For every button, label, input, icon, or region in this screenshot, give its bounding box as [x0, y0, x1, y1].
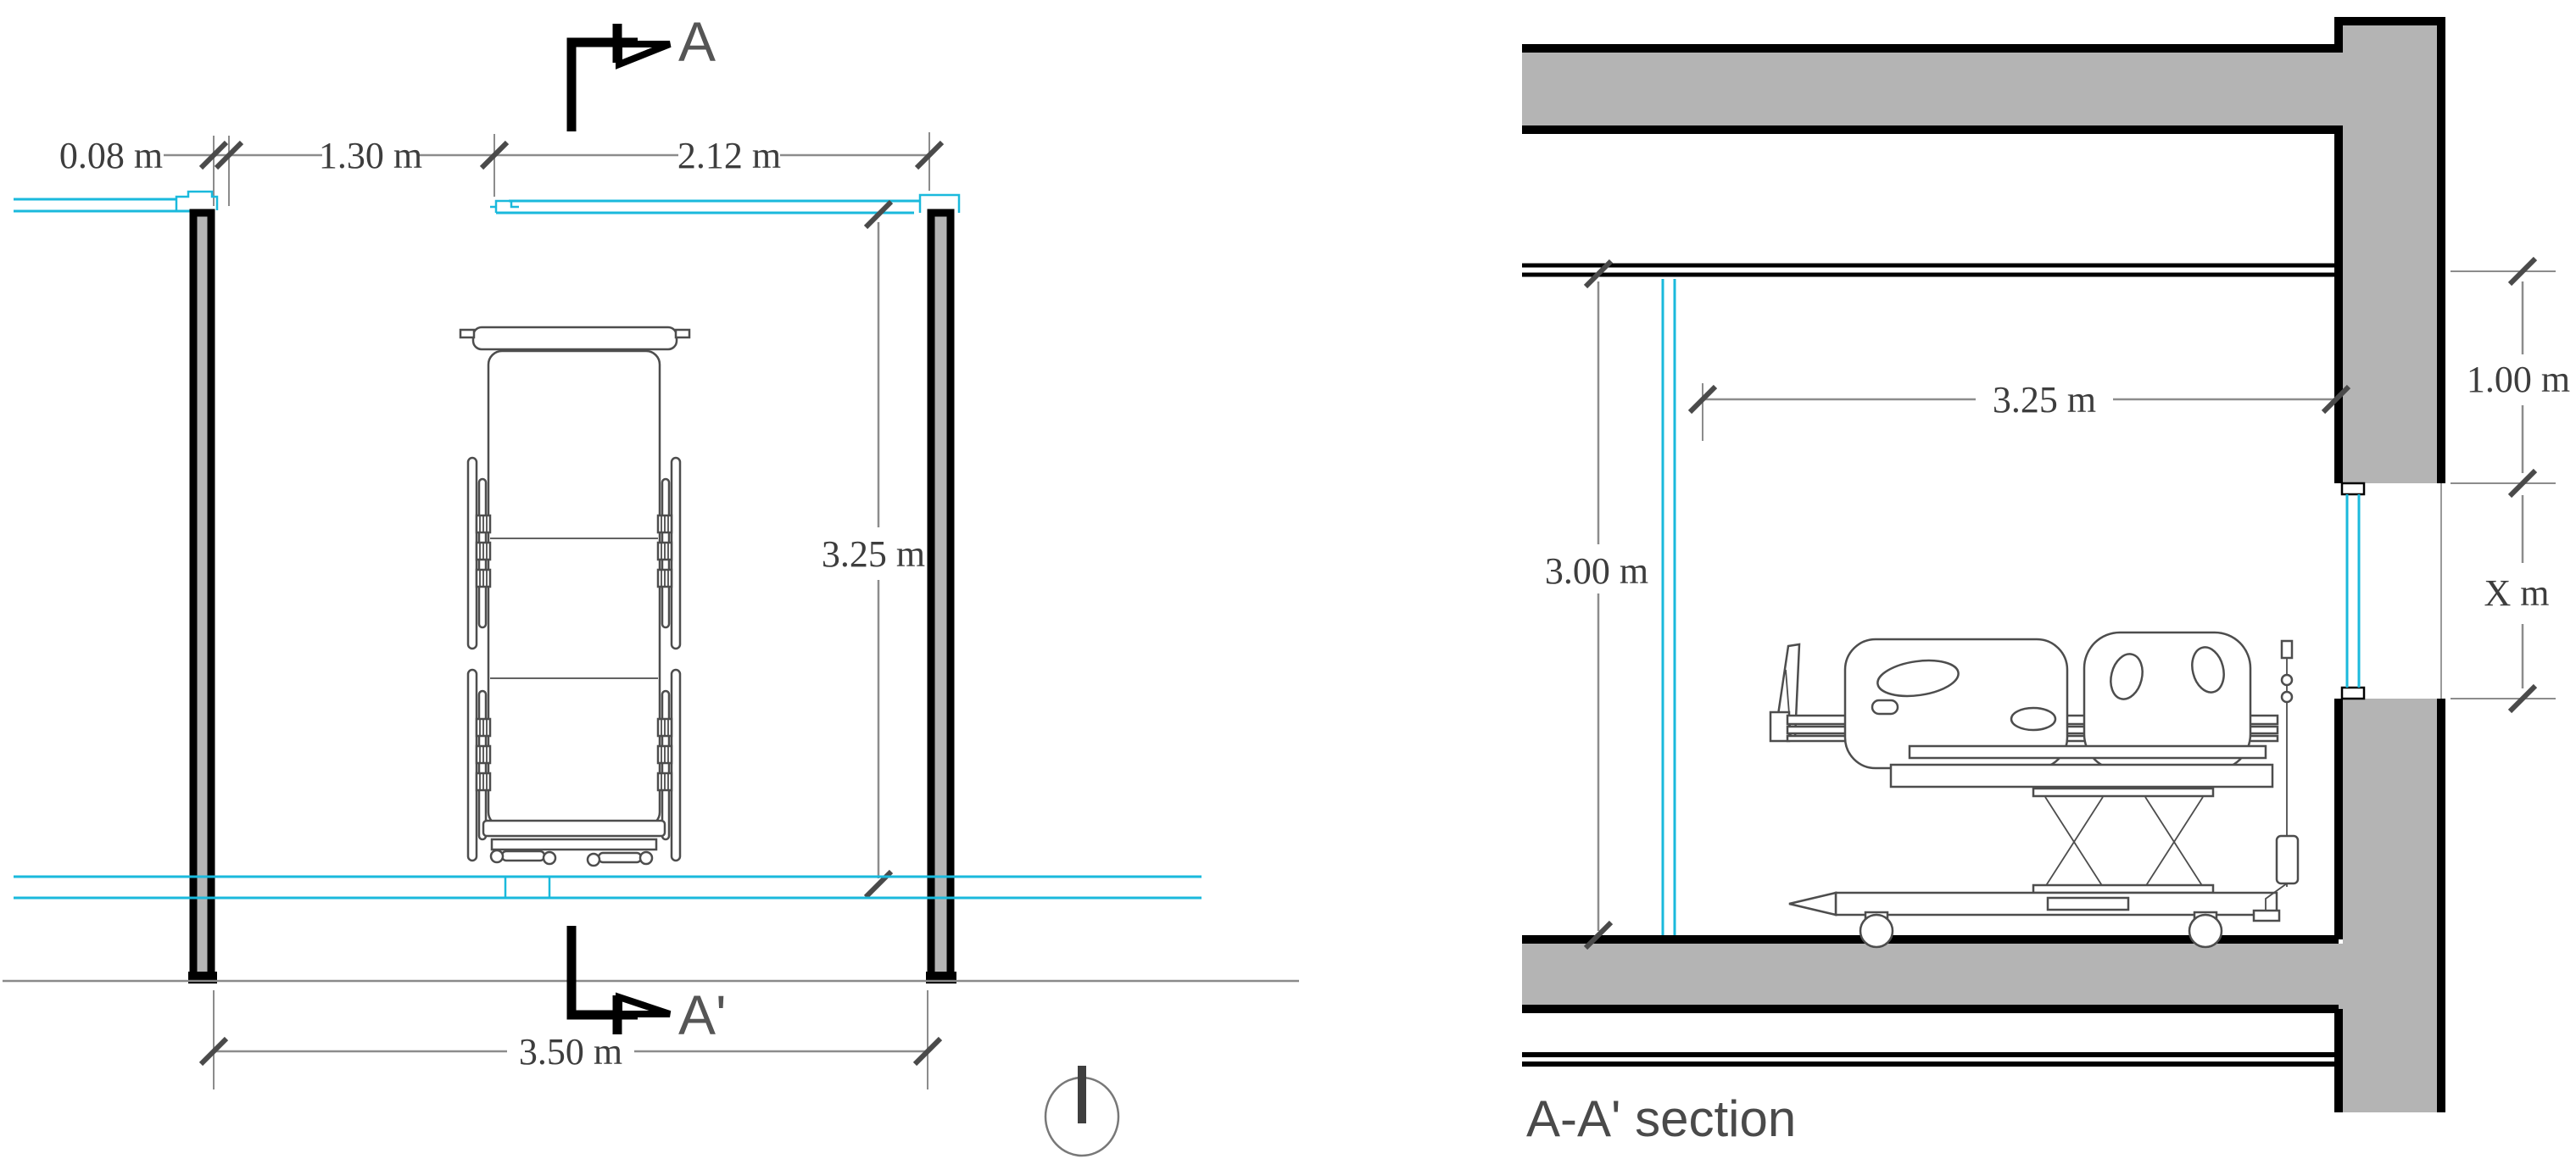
dim-label-room-depth: 3.25 m: [822, 533, 925, 575]
wall-right: [931, 213, 951, 979]
door-frame-cap: [2342, 483, 2364, 494]
window-jamb: [490, 201, 519, 213]
bed-side-rail: [479, 691, 486, 839]
bed-caster: [491, 850, 555, 864]
bed-foot-frame: [492, 839, 656, 850]
dim-label-wall-offset: 0.08 m: [59, 135, 163, 176]
section-arrow-icon: [619, 997, 670, 1014]
section-marker-label: A: [678, 10, 716, 73]
bed-footboard: [483, 821, 665, 836]
bed-side-rail: [468, 670, 477, 861]
plan-top-dimension: 0.08 m 1.30 m 2.12 m: [59, 132, 942, 206]
drawing-sheet: 0.08 m 1.30 m 2.12 m A: [0, 0, 2576, 1159]
bed-pedestal-bar: [1891, 765, 2272, 787]
plan-windows-top: [14, 192, 959, 213]
bed-side-rail: [468, 458, 477, 649]
section-window: [1663, 279, 1675, 935]
bed-side-rail: [662, 691, 669, 839]
dim-label-opening-height: X m: [2484, 572, 2550, 614]
patient-bed-plan: [460, 327, 689, 866]
section-opening-dimensions: 1.00 m X m: [2451, 259, 2570, 711]
bed-rail-hinge: [477, 515, 490, 587]
section-structure: [1522, 17, 2445, 1112]
dim-label-room-width: 3.50 m: [519, 1031, 622, 1073]
section-title: A-A' section: [1526, 1090, 1796, 1147]
bed-litter-platform: [1910, 746, 2266, 758]
bed-headboard: [473, 327, 677, 349]
patient-bed-side: [1770, 632, 2298, 947]
section-marker-label: A': [678, 983, 727, 1046]
section-view: 3.00 m 3.25 m 1.00 m X m A-A': [1522, 17, 2570, 1147]
bed-side-rail: [672, 458, 680, 649]
dim-label-window-span: 2.12 m: [677, 135, 781, 176]
bed-body: [488, 351, 660, 826]
section-cut-marker-a-prime: A': [572, 926, 727, 1046]
door-opening: [2334, 483, 2445, 699]
bed-frame-endcap: [1770, 712, 1789, 741]
bed-rail-hinge: [658, 515, 672, 587]
plan-view: 0.08 m 1.30 m 2.12 m A: [3, 10, 1299, 1156]
north-indicator: [1045, 1066, 1118, 1156]
slab-top: [1522, 53, 2437, 130]
bed-side-rail: [672, 670, 680, 861]
dim-label-left-span: 1.30 m: [319, 135, 422, 176]
dim-label-clear-height: 3.00 m: [1545, 550, 1648, 592]
bed-scissor-lift: [2033, 788, 2213, 893]
plan-depth-dimension: 3.25 m: [822, 202, 925, 897]
section-cut-marker-a: A: [572, 10, 716, 131]
section-width-dimension: 3.25 m: [1690, 379, 2349, 441]
dim-label-above-opening: 1.00 m: [2467, 359, 2570, 400]
section-arrow-icon: [619, 44, 670, 64]
drawing-canvas: 0.08 m 1.30 m 2.12 m A: [0, 0, 2576, 1159]
window-jamb: [176, 192, 217, 211]
bed-caster: [2189, 912, 2222, 947]
bed-headboard-handle: [460, 330, 474, 337]
wall-left: [193, 213, 211, 979]
bed-caster: [588, 852, 652, 866]
bed-rail-hinge: [658, 719, 672, 790]
dim-label-section-width: 3.25 m: [1993, 379, 2096, 421]
section-height-dimension: 3.00 m: [1545, 261, 1648, 948]
bed-headboard-handle: [676, 330, 689, 337]
bed-caster: [1860, 912, 1893, 947]
slab-floor: [1522, 944, 2437, 1009]
door-frame-cap: [2342, 688, 2364, 699]
bed-rail-hinge: [477, 719, 490, 790]
